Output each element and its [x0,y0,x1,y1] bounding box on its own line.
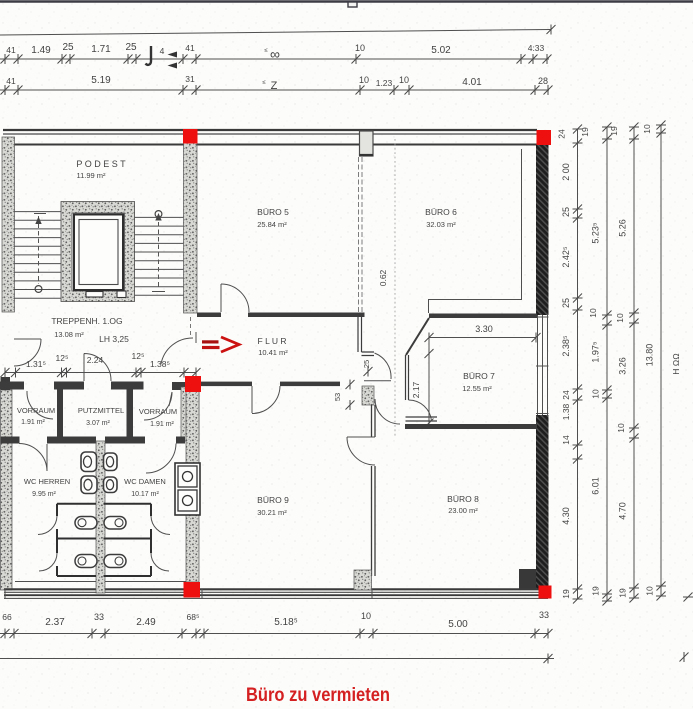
svg-text:BÜRO 7: BÜRO 7 [463,371,495,381]
svg-text:66: 66 [2,612,12,622]
svg-text:1.91 m²: 1.91 m² [150,421,174,428]
svg-text:4.70: 4.70 [618,502,628,520]
svg-text:10: 10 [615,313,625,323]
svg-text:25: 25 [561,207,571,217]
svg-text:3.30: 3.30 [475,324,493,334]
svg-text:12⁵: 12⁵ [132,351,145,361]
svg-text:4: 4 [160,46,165,56]
svg-text:14: 14 [561,435,571,445]
svg-text:24: 24 [561,390,571,400]
svg-text:BÜRO 9: BÜRO 9 [257,495,289,505]
svg-text:H ΩΩ: H ΩΩ [671,353,681,375]
svg-text:10: 10 [588,308,598,318]
svg-text:12.55 m²: 12.55 m² [462,384,492,393]
svg-text:41: 41 [6,45,16,55]
svg-text:41: 41 [185,43,195,53]
svg-text:5.26: 5.26 [618,219,628,237]
svg-text:1.31⁵: 1.31⁵ [26,359,46,369]
svg-text:30.21 m²: 30.21 m² [257,508,287,517]
svg-text:5.19: 5.19 [91,75,111,86]
svg-text:5.18⁵: 5.18⁵ [274,617,298,628]
svg-text:6.01: 6.01 [591,477,601,495]
svg-text:19: 19 [618,588,628,598]
svg-text:4:33: 4:33 [528,43,545,53]
svg-text:33: 33 [539,610,549,620]
svg-text:10: 10 [399,75,409,85]
svg-text:4.01: 4.01 [462,77,482,88]
svg-text:10: 10 [591,389,601,399]
svg-text:10: 10 [361,611,371,621]
svg-text:P O D E S T: P O D E S T [76,159,126,169]
svg-text:23.00 m²: 23.00 m² [448,506,478,515]
svg-text:10: 10 [616,423,626,433]
svg-text:Büro zu vermieten: Büro zu vermieten [246,684,390,706]
svg-text:WC HERREN: WC HERREN [24,477,70,486]
svg-text:19: 19 [609,126,619,136]
svg-text:31: 31 [185,74,195,84]
svg-text:0.62: 0.62 [378,269,388,286]
svg-text:19: 19 [580,127,590,137]
svg-text:BÜRO 5: BÜRO 5 [257,207,289,217]
svg-text:24: 24 [557,129,567,139]
svg-text:32.03 m²: 32.03 m² [426,220,456,229]
svg-text:Z: Z [271,80,278,92]
svg-text:3.07 m²: 3.07 m² [86,420,110,427]
svg-text:PUTZMITTEL: PUTZMITTEL [78,406,124,415]
svg-text:10: 10 [645,586,655,596]
svg-text:11.99 m²: 11.99 m² [76,171,106,180]
svg-text:2 00: 2 00 [561,163,571,181]
svg-text:2.38⁵: 2.38⁵ [561,335,571,357]
svg-text:F L U R: F L U R [258,336,287,346]
svg-text:BÜRO 6: BÜRO 6 [425,207,457,217]
svg-text:12⁵: 12⁵ [56,353,69,363]
svg-text:VORRAUM: VORRAUM [139,407,177,416]
svg-text:25: 25 [62,42,74,53]
svg-text:1.97⁵: 1.97⁵ [591,341,601,363]
svg-text:13.80: 13.80 [645,344,655,367]
svg-text:25: 25 [125,42,137,53]
svg-text:VORRAUM: VORRAUM [17,406,55,415]
svg-text:5.02: 5.02 [431,45,451,56]
svg-text:2.17: 2.17 [411,381,421,398]
svg-text:53: 53 [333,393,342,401]
svg-text:WC DAMEN: WC DAMEN [124,477,166,486]
svg-text:4.30: 4.30 [561,507,571,525]
svg-text:3.26: 3.26 [618,357,628,375]
svg-text:10.41 m²: 10.41 m² [258,348,288,357]
svg-text:13.08 m²: 13.08 m² [54,330,84,339]
svg-text:25: 25 [362,360,371,368]
svg-text:41: 41 [6,76,16,86]
svg-text:∞: ∞ [270,46,280,62]
svg-text:1.71: 1.71 [91,44,111,55]
svg-text:19: 19 [591,586,601,596]
svg-text:1.38: 1.38 [561,403,571,420]
svg-text:5.23⁵: 5.23⁵ [591,222,601,244]
svg-text:10.17 m²: 10.17 m² [131,491,159,498]
svg-text:19: 19 [561,589,571,599]
svg-text:5.00: 5.00 [448,619,468,630]
svg-text:10: 10 [359,75,369,85]
svg-text:28: 28 [538,76,548,86]
svg-text:68⁵: 68⁵ [187,612,200,622]
svg-text:2.37: 2.37 [45,617,65,628]
svg-text:9.95 m²: 9.95 m² [32,491,56,498]
svg-text:1.49: 1.49 [31,45,51,56]
svg-text:1.38⁵: 1.38⁵ [150,359,170,369]
svg-text:2.49: 2.49 [136,617,156,628]
svg-text:25.84 m²: 25.84 m² [257,220,287,229]
svg-text:10: 10 [355,43,365,53]
svg-text:2.42⁵: 2.42⁵ [561,246,571,268]
svg-text:1.91 m²: 1.91 m² [21,419,45,426]
svg-text:1.23: 1.23 [376,78,393,88]
svg-text:TREPPENH. 1.OG: TREPPENH. 1.OG [51,316,122,326]
svg-text:10: 10 [642,124,652,134]
svg-text:LH 3,25: LH 3,25 [99,334,129,344]
svg-text:33: 33 [94,612,104,622]
svg-text:25: 25 [561,298,571,308]
svg-text:BÜRO 8: BÜRO 8 [447,494,479,504]
